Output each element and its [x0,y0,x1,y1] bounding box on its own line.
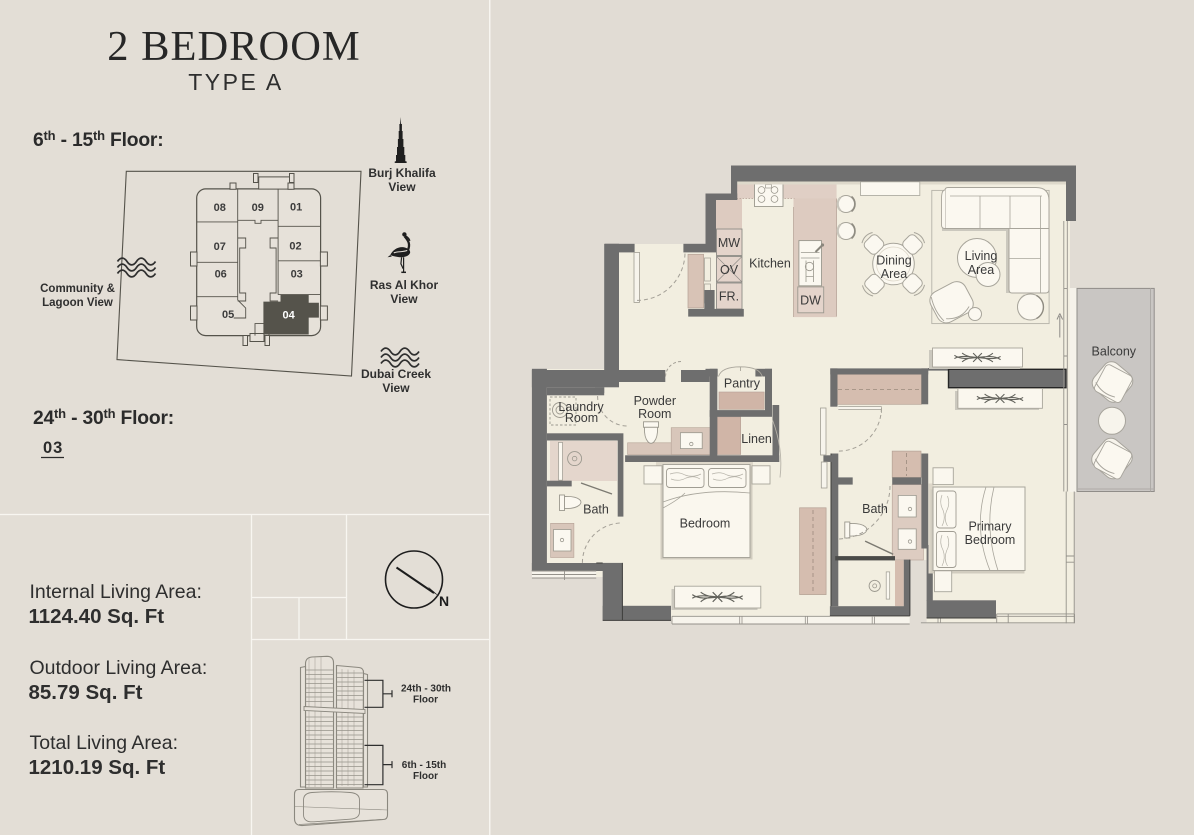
svg-text:Burj Khalifa: Burj Khalifa [368,166,436,180]
svg-text:05: 05 [222,309,234,321]
svg-text:Bath: Bath [862,502,888,516]
svg-text:Bath: Bath [583,503,609,517]
svg-text:View: View [390,292,418,306]
svg-text:Dubai Creek: Dubai Creek [361,367,431,381]
svg-text:TYPE A: TYPE A [188,69,284,95]
svg-text:24th - 30th: 24th - 30th [401,684,451,695]
svg-text:Total Living Area:: Total Living Area: [30,732,179,754]
svg-text:Kitchen: Kitchen [749,257,791,271]
svg-text:03: 03 [291,269,303,281]
svg-text:07: 07 [214,241,226,253]
svg-text:Pantry: Pantry [724,377,761,391]
svg-text:02: 02 [289,241,301,253]
svg-text:85.79 Sq. Ft: 85.79 Sq. Ft [29,681,143,704]
svg-text:Bedroom: Bedroom [680,517,731,531]
svg-text:Dining: Dining [876,254,911,268]
svg-text:Lagoon View: Lagoon View [42,297,113,309]
svg-text:Internal Living Area:: Internal Living Area: [30,581,202,603]
svg-text:Area: Area [881,267,907,281]
svg-text:04: 04 [282,309,295,321]
svg-text:09: 09 [252,202,264,214]
svg-text:Balcony: Balcony [1092,345,1137,359]
svg-text:06: 06 [215,268,227,280]
svg-text:MW: MW [718,236,740,250]
svg-text:Floor: Floor [413,771,438,782]
svg-text:View: View [388,180,416,194]
svg-text:N: N [439,593,449,609]
svg-text:Ras Al Khor: Ras Al Khor [370,278,439,292]
svg-text:Living: Living [965,249,998,263]
svg-text:1210.19 Sq. Ft: 1210.19 Sq. Ft [29,756,166,779]
svg-text:01: 01 [290,202,302,214]
svg-text:Room: Room [638,407,671,421]
svg-text:08: 08 [214,202,226,214]
svg-text:Primary: Primary [968,520,1012,534]
svg-text:DW: DW [800,294,821,308]
svg-text:Floor: Floor [413,695,438,706]
svg-text:Linen: Linen [741,432,772,446]
svg-text:6th - 15th: 6th - 15th [402,760,446,771]
svg-text:Room: Room [565,411,598,425]
svg-text:FR.: FR. [719,290,739,304]
svg-text:OV: OV [720,263,739,277]
svg-text:Outdoor Living Area:: Outdoor Living Area: [30,657,208,679]
svg-text:1124.40 Sq. Ft: 1124.40 Sq. Ft [29,605,165,628]
svg-text:Area: Area [968,263,994,277]
svg-text:View: View [382,381,410,395]
svg-text:Community &: Community & [40,283,115,295]
svg-text:2 BEDROOM: 2 BEDROOM [107,23,360,70]
svg-text:03: 03 [43,439,63,457]
svg-text:Powder: Powder [634,394,676,408]
svg-text:Bedroom: Bedroom [965,533,1016,547]
